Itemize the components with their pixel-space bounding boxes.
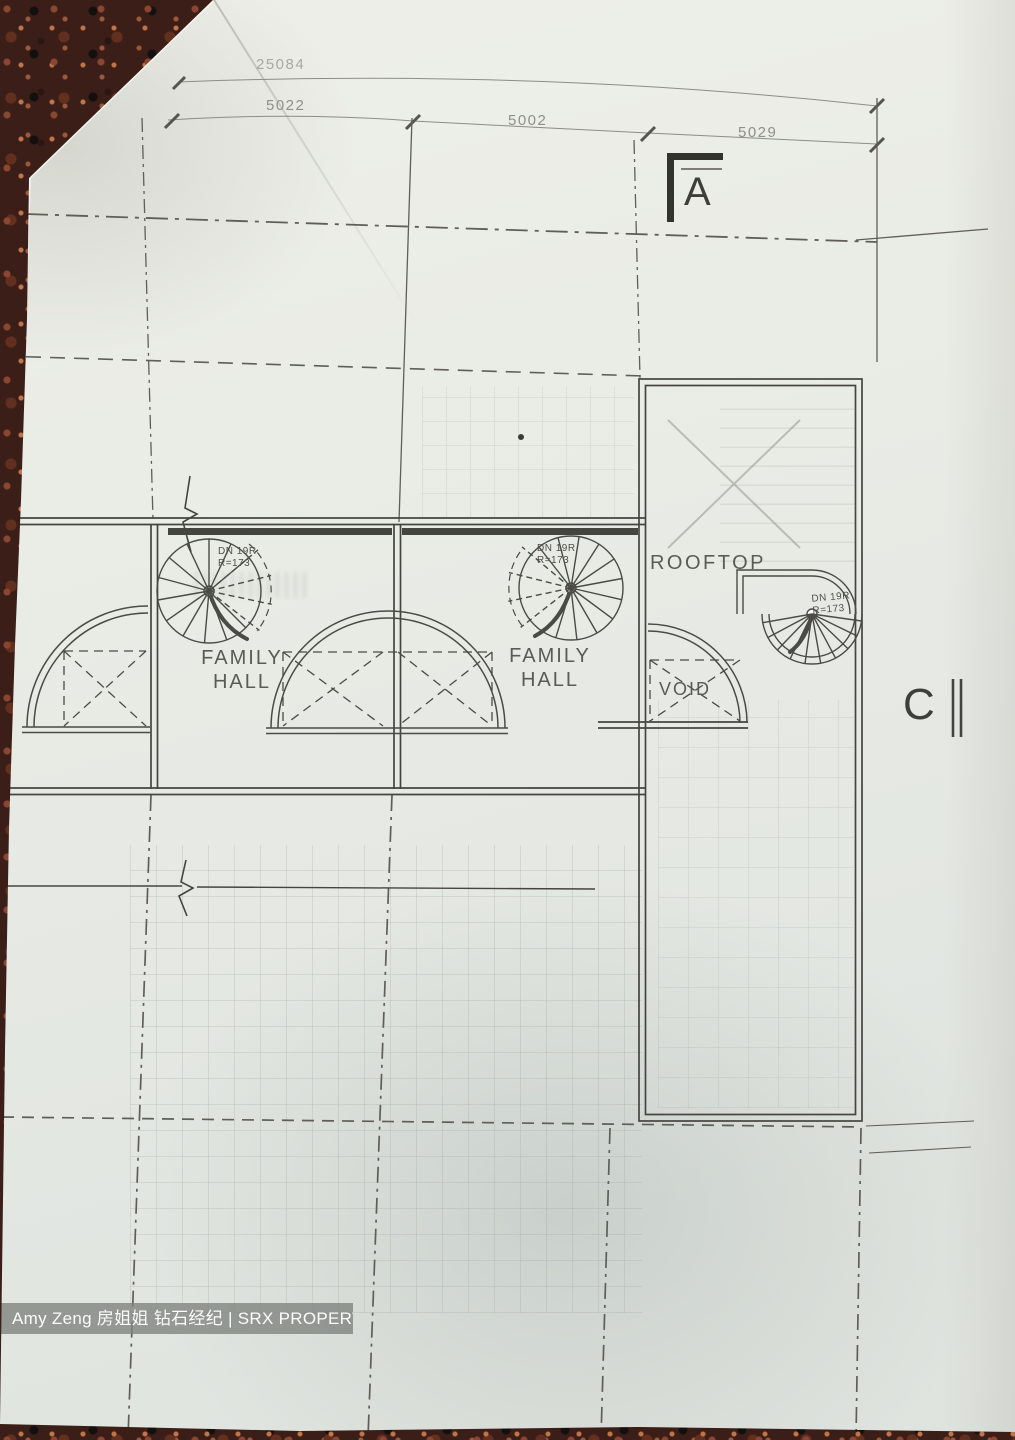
room-label-family-hall-2: FAMILY HALL [494,644,606,692]
agent-watermark: Amy Zeng 房姐姐 钻石经纪 | SRX PROPERTY [0,1303,353,1334]
grid-lines [2,98,988,1438]
section-marker-c-symbol [953,679,961,737]
stair-label-3: DN 19R R=173 [811,590,852,617]
stair-label-2: DN 19R R=173 [537,543,576,567]
spiral-staircase-3 [737,570,862,664]
break-symbols [179,476,197,916]
dimension-overall: 25084 [256,56,305,73]
blueprint-paper: 25084 5022 5002 5029 A C FAMILY HALL FAM… [0,0,1015,1440]
room-label-rooftop: ROOFTOP [648,551,768,575]
bleed-diagonals [668,420,800,548]
floor-plan-photo: 25084 5022 5002 5029 A C FAMILY HALL FAM… [0,0,1015,1440]
stair-label-1: DN 19R R=173 [218,546,257,570]
dimension-bay1: 5022 [266,97,305,114]
dimension-bay3: 5029 [738,124,777,141]
ink-dot [518,434,524,440]
walls [0,518,748,889]
plan-linework [0,0,1015,1440]
section-marker-a-letter: A [684,170,711,215]
room-label-family-hall-1: FAMILY HALL [186,646,298,694]
section-marker-c-letter: C [903,680,935,730]
rooftop-outline [639,379,862,1121]
room-label-void: VOID [650,679,720,701]
dimension-bay2: 5002 [508,112,547,129]
